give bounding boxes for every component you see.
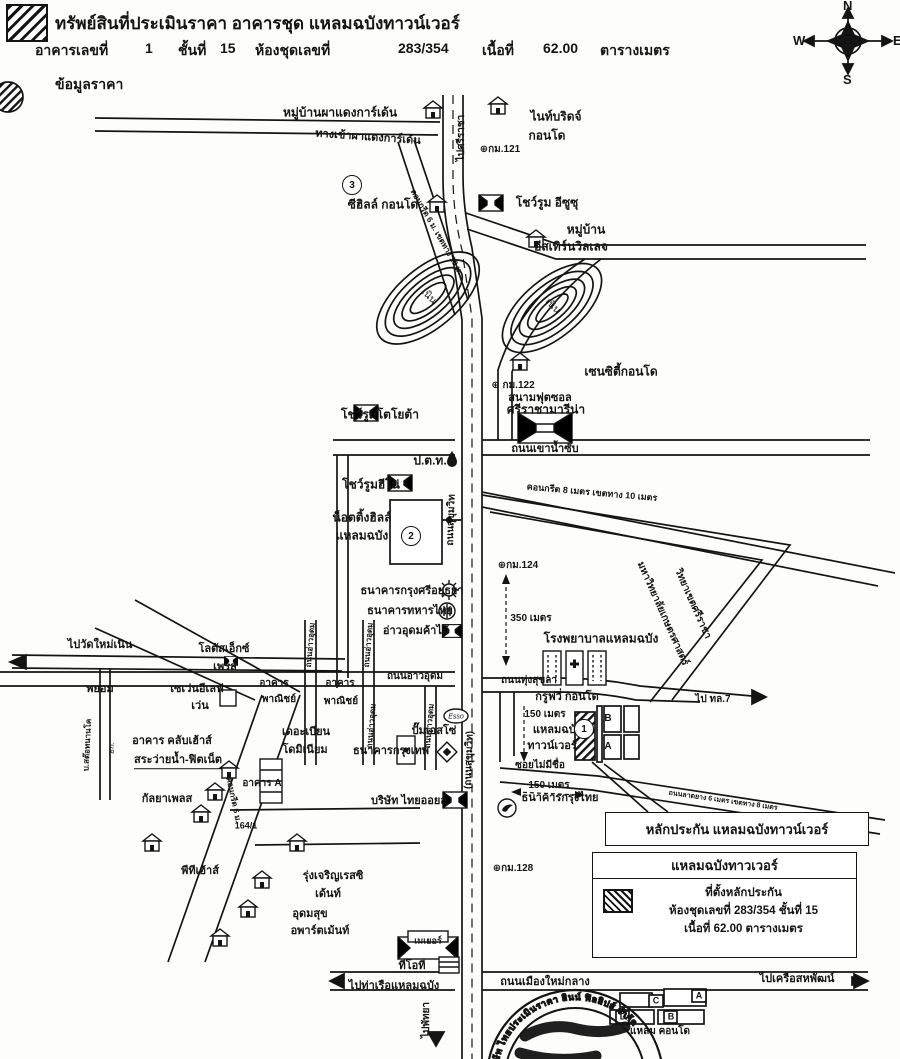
map-label: พาณิชย์ — [324, 697, 358, 708]
label-clubhouse: อาคาร คลับเฮ้าส์ — [132, 736, 212, 748]
label-to-pattaya: ไปพัทยา — [422, 1002, 433, 1038]
label-udom-suk-apartment: อุดมสุข — [292, 909, 327, 921]
field-area-unit: ตารางเมตร — [600, 40, 670, 62]
label-rung-charoen-residence: รุ่งเจริญเรสซิ — [303, 871, 364, 883]
label-building-a: A — [604, 742, 611, 753]
label-thung-sukhla-road: ถนนทุ่งสุขลา — [501, 676, 557, 687]
field-building-label: อาคารเลขที่ — [35, 40, 108, 62]
label-sukhumvit-road: ถนนสุขุมวิท — [446, 494, 458, 546]
map-label: พยอม — [86, 684, 114, 696]
legend-box: แหลมฉบังทาวเวอร์ ที่ตั้งหลักประกัน ห้องช… — [592, 852, 857, 958]
map-label: วิทยาเขตศรีราชา — [672, 567, 712, 640]
map-label: ถนนอ่าวอุดม — [305, 622, 317, 667]
map-label: 150 เมตร — [528, 781, 569, 792]
map-label: คอนกรีต 6 ม. เขตทาง 10 ม. — [408, 188, 464, 276]
label-zencity-condo: เซนซิตี้กอนโด — [584, 366, 657, 379]
label-pt-house: พีทีเฮ้าส์ — [181, 866, 219, 878]
label-mueang-mai-klang-road: ถนนเมืองใหม่กลาง — [500, 977, 590, 989]
reference-marker-2: 2 — [401, 526, 421, 546]
label-groovy-condo: กรูฟวี่ กอนโด — [535, 692, 598, 704]
label-knight-bridge: ไนท์บริดจ์ — [530, 111, 581, 124]
label-ao-udom-timber: อ่าวอุดมค้าไม้ — [383, 626, 449, 638]
reference-marker-1: 1 — [574, 719, 594, 739]
field-building-value: 1 — [145, 40, 153, 56]
map-label: คอนกรีต 8 เมตร เขตทาง 10 เมตร — [526, 483, 657, 504]
compass-e: E — [893, 33, 900, 48]
label-notting-hill: น็อตติ้งฮิลล์ — [333, 512, 392, 525]
label-tot: ทีโอที — [398, 961, 425, 973]
page-title: ทรัพย์สินที่ประเมินราคา อาคารชุด แหลมฉบั… — [55, 10, 460, 37]
legend-hatch-swatch — [603, 889, 633, 913]
label-laem-condo: แหลม คอนโด — [630, 1027, 690, 1038]
label-pha-daeng-garden: หมู่บ้านผาแดงการ์เด้น — [283, 107, 397, 120]
map-label: กอนโด — [529, 130, 566, 143]
compass-w: W — [793, 33, 805, 48]
reference-marker-3: 3 — [342, 175, 362, 195]
legend-title: แหลมฉบังทาวเวอร์ — [593, 853, 856, 879]
label-to-wat-mai-noen: ไปวัดใหม่เนิน — [68, 640, 133, 652]
label-seven-eleven: เซเว่นอีเลฟ — [170, 684, 224, 696]
map-label: หมู่บ้าน — [567, 224, 605, 237]
header: ทรัพย์สินที่ประเมินราคา อาคารชุด แหลมฉบั… — [0, 0, 900, 100]
map-label: (ถนนสุขุมวิท) — [464, 731, 477, 789]
label-khao-nam-sap-road: ถนนเขาน้ำซับ — [511, 444, 578, 456]
label-pha-daeng-entrance: ทางเข้าผาแดงการ์เด้น — [315, 129, 421, 148]
map-label: ถนนอ่าวอุดม — [363, 622, 375, 667]
map-label: 164/1 — [235, 821, 258, 830]
label-seahill-condo: ซีฮิลล์ กอนโด — [348, 199, 418, 212]
label-toyota-showroom: โชว์รูมโตโยต้า — [341, 409, 419, 422]
label-unnamed-soi: ซอยไม่มีชื่อ — [515, 761, 565, 772]
label-thai-oil: บริษัท ไทยออยล์ — [371, 796, 447, 808]
price-info-label: ข้อมูลราคา — [55, 74, 123, 96]
legend-line2: ห้องชุดเลขที่ 283/354 ชั้นที่ 15 — [637, 903, 850, 921]
compass-s: S — [843, 72, 852, 87]
label-km124: ⊕กม.124 — [498, 561, 539, 572]
map-label: D — [620, 1012, 627, 1021]
map-label: C — [653, 996, 660, 1005]
label-isuzu-showroom: โชว์รูม อีซูซุ — [516, 197, 579, 210]
field-area-label: เนื้อที่ — [482, 40, 514, 62]
label-krungsri-bank: ธนาคารกรุงศรีอยุธยา — [360, 586, 463, 598]
hatch-legend-chip — [6, 4, 48, 42]
map-label: พาณิชย์ — [262, 695, 296, 706]
map-label: เว่น — [191, 701, 208, 713]
map-label: 150 เมตร — [524, 710, 565, 721]
collateral-callout: หลักประกัน แหลมฉบังทาวน์เวอร์ — [605, 812, 869, 846]
label-the-bien-condominium: เดอะเบียน — [282, 727, 330, 739]
map-label: อาคาร A — [242, 779, 281, 790]
map-label: คอนกรีต 6 ม. — [224, 776, 242, 823]
label-hill: เนิน — [542, 297, 562, 317]
map-label: ถนนลาดยาง 6 เมตร เขตทาง 8 เมตร — [668, 790, 778, 813]
field-floor-label: ชั้นที่ — [178, 40, 206, 62]
label-laem-chabang-hospital: โรงพยาบาลแหลมฉบัง — [544, 633, 659, 646]
label-ao-udom-road: ถนนอาวอุดม — [387, 672, 443, 683]
map-label: เด้นท์ — [315, 889, 341, 901]
label-esso-station: ปั๊มเอสโซ่ — [412, 726, 457, 738]
map-label: บ.สต๊อทนานโค — [82, 719, 93, 772]
map-label: 350 เมตร — [510, 614, 551, 625]
label-mayor: เมเยอร์ — [414, 936, 442, 945]
map-label: B — [668, 1012, 675, 1021]
label-eastern-village: อีสเทิร์นวิลเลจ — [534, 241, 608, 254]
field-area-value: 62.00 — [543, 40, 578, 56]
map-label: สระว่ายน้ำ-ฟิตเน็ต — [134, 755, 222, 769]
map-label: แหลมฉบัง — [336, 530, 389, 543]
map-label: อาคาร — [325, 679, 354, 690]
map-label: A — [696, 991, 703, 1000]
legend-line3: เนื้อที่ 62.00 ตารางเมตร — [637, 921, 850, 939]
field-unit-value: 283/354 — [398, 40, 449, 56]
map-label: ฮก. — [107, 742, 116, 754]
field-unit-label: ห้องชุดเลขที่ — [255, 40, 330, 62]
label-km121: ⊕กม.121 — [480, 145, 521, 156]
label-to-sriracha: ไปศรีราชา — [457, 115, 468, 161]
label-krung-thai-bank: ธนาคารกรุงไทย — [521, 793, 598, 805]
label-lotus-express: โลตัสเอ็กซ์ — [199, 644, 250, 656]
field-floor-value: 15 — [220, 40, 236, 56]
compass-n: N — [843, 0, 852, 13]
map-label: เพรส — [213, 662, 237, 674]
map-label: ถนนอ่าวอุดม — [366, 703, 378, 748]
label-building-b: B — [604, 714, 611, 725]
label-kanlaya-place: กัลยาเพลส — [142, 794, 193, 806]
map-label: อาคาร — [259, 679, 288, 690]
legend-line1: ที่ตั้งหลักประกัน — [637, 885, 850, 903]
label-to-laem-chabang-port: ไปท่าเรือแหลมฉบัง — [349, 981, 439, 993]
label-km122: ⊕ กม.122 — [491, 381, 534, 392]
label-bangkok-bank: ธนาคารกรุงเทพ — [353, 746, 429, 758]
map-label: อพาร์ตเม้นท์ — [291, 926, 350, 938]
label-to-saha-group: ไปเครือสหพัฒน์ — [760, 974, 835, 986]
label-hill: เนิน — [418, 287, 438, 307]
map-label: ทาวน์เวอร์ — [527, 741, 577, 753]
label-hino-showroom: โชว์รูมฮีโน่ — [342, 479, 400, 492]
label-ptt: ป.ต.ท. — [413, 455, 446, 468]
label-sriracha-marina: ศรีราชามารีน่า — [507, 404, 585, 417]
label-to-highway7: ไป ทล.7 — [695, 695, 730, 706]
label-tmb-bank: ธนาคารทหารไทย — [367, 606, 453, 618]
map-label: โดมิเนียม — [282, 745, 327, 757]
label-km128: ⊕กม.128 — [493, 864, 534, 875]
appraisal-map-page: Esso บริษัท ไทยประเมินราคา ลินน์ ฟิลลิปส… — [0, 0, 900, 1059]
